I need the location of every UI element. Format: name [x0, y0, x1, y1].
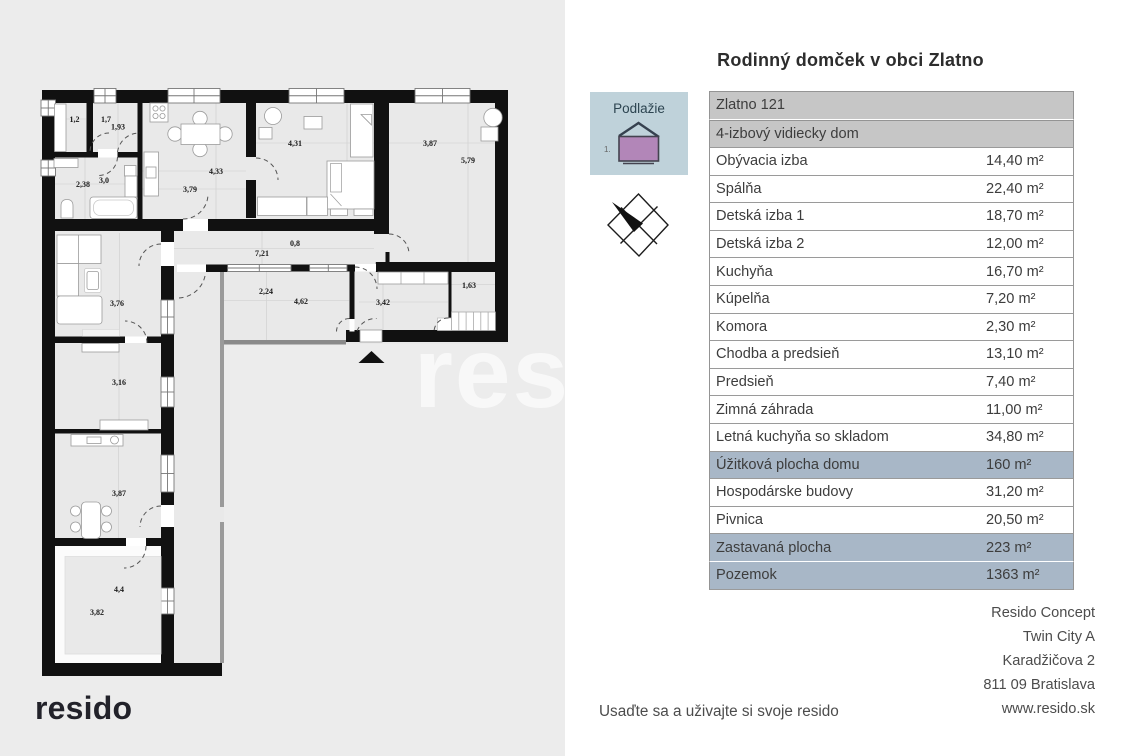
- svg-text:3,87: 3,87: [423, 139, 437, 148]
- svg-text:3,87: 3,87: [112, 489, 126, 498]
- svg-text:3,0: 3,0: [99, 176, 109, 185]
- svg-text:3,76: 3,76: [110, 299, 124, 308]
- svg-text:3,82: 3,82: [90, 608, 104, 617]
- svg-text:4,4: 4,4: [114, 585, 124, 594]
- svg-text:1,93: 1,93: [111, 123, 125, 132]
- svg-text:1,2: 1,2: [70, 115, 80, 124]
- svg-text:1,63: 1,63: [462, 281, 476, 290]
- svg-text:5,79: 5,79: [461, 156, 475, 165]
- svg-text:3,79: 3,79: [183, 185, 197, 194]
- svg-text:3,16: 3,16: [112, 378, 126, 387]
- svg-text:3,42: 3,42: [376, 298, 390, 307]
- svg-text:4,33: 4,33: [209, 167, 223, 176]
- svg-text:2,38: 2,38: [76, 180, 90, 189]
- svg-text:1,7: 1,7: [101, 115, 111, 124]
- svg-text:2,24: 2,24: [259, 287, 273, 296]
- svg-text:7,21: 7,21: [255, 249, 269, 258]
- svg-text:4,62: 4,62: [294, 297, 308, 306]
- svg-text:4,31: 4,31: [288, 139, 302, 148]
- svg-text:0,8: 0,8: [290, 239, 300, 248]
